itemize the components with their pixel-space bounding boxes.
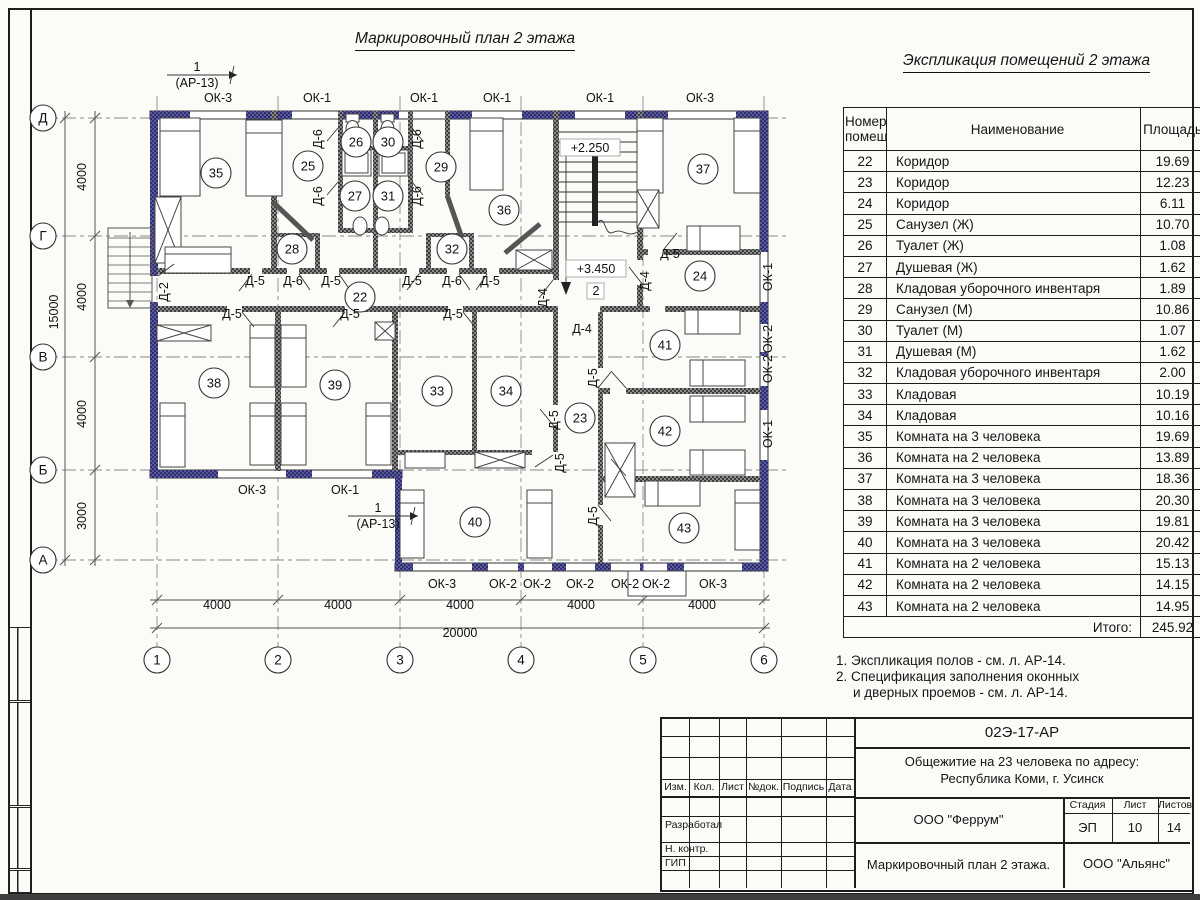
room-name-cell: Комната на 2 человека (887, 553, 1141, 574)
axis-number: 4 (517, 653, 525, 668)
room-number-cell: 36 (844, 447, 887, 468)
room-number: 39 (328, 378, 342, 393)
dimension-label: 15000 (47, 295, 61, 330)
room-number: 23 (573, 411, 587, 426)
window-label: ОК-3 (238, 483, 266, 497)
room-number: 42 (658, 424, 672, 439)
room-number-cell: 39 (844, 511, 887, 532)
role-ncontrol: Н. контр. (665, 843, 708, 855)
axis-letter: В (38, 350, 47, 365)
explication-table: Номерпомещ. Наименование Площадь Капо 22… (843, 107, 1200, 638)
axis-number: 6 (760, 653, 768, 668)
sheet-label: Лист (1112, 799, 1158, 811)
room-number-cell: 43 (844, 595, 887, 616)
room-name-cell: Комната на 2 человека (887, 595, 1141, 616)
room-area-cell: 19.69 (1141, 151, 1200, 172)
explication-row: 27Душевая (Ж)1.62 (844, 256, 1200, 277)
side-stamp-box (8, 870, 31, 893)
axis-letter: А (38, 553, 47, 568)
door-label: Д-5 (586, 368, 600, 388)
explication-row: 29Санузел (М)10.86 (844, 299, 1200, 320)
door-label: Д-6 (442, 274, 462, 288)
room-number: 22 (353, 290, 367, 305)
sanitary-fixtures (165, 114, 686, 596)
door-label: Д-6 (410, 129, 424, 149)
role-gip: ГИП (665, 857, 686, 869)
explication-row: 43Комната на 2 человека14.95 (844, 595, 1200, 616)
drawing-sheet: { "sheet": { "plan_title": "Маркировочны… (0, 0, 1200, 900)
col-number-header: Номерпомещ. (844, 108, 887, 151)
room-name-cell: Кладовая (887, 384, 1141, 405)
axis-number: 3 (396, 653, 404, 668)
room-name-cell: Душевая (Ж) (887, 256, 1141, 277)
scan-edge-strip (0, 894, 1200, 900)
section-number: 1 (375, 501, 382, 515)
door-label: Д-4 (638, 271, 652, 291)
room-area-cell: 13.89 (1141, 447, 1200, 468)
room-number-cell: 31 (844, 341, 887, 362)
explication-row: 30Туалет (М)1.07 (844, 320, 1200, 341)
sign-col-kol: Кол. (689, 781, 719, 793)
room-number-cell: 27 (844, 256, 887, 277)
explication-row: 35Комната на 3 человека19.69 (844, 426, 1200, 447)
window-label: ОК-2 (642, 577, 670, 591)
explication-title: Экспликация помещений 2 этажа (903, 52, 1150, 73)
room-area-cell: 14.15 (1141, 574, 1200, 595)
explication-row: 38Комната на 3 человека20.30 (844, 490, 1200, 511)
door-label: Д-6 (311, 186, 325, 206)
sign-col-doc: №док. (746, 781, 781, 793)
door-label: Д-5 (660, 247, 680, 261)
room-number: 32 (445, 242, 459, 257)
dimension-label: 20000 (443, 626, 478, 640)
explication-row: 32Кладовая уборочного инвентаря2.00 (844, 362, 1200, 383)
room-number: 33 (430, 384, 444, 399)
room-area-cell: 10.70 (1141, 214, 1200, 235)
room-number-cell: 38 (844, 490, 887, 511)
window-label: ОК-1 (483, 91, 511, 105)
dimension-label: 4000 (75, 283, 89, 311)
room-area-cell: 15.13 (1141, 553, 1200, 574)
window-label: ОК-2 (611, 577, 639, 591)
room-number-cell: 32 (844, 362, 887, 383)
room-number-cell: 35 (844, 426, 887, 447)
explication-row: 40Комната на 3 человека20.42 (844, 532, 1200, 553)
window-label: ОК-1 (586, 91, 614, 105)
object-name-line2: Республика Коми, г. Усинск (854, 771, 1190, 786)
room-number-cell: 29 (844, 299, 887, 320)
stage-label: Стадия (1063, 799, 1112, 811)
explication-row: 22Коридор19.69 (844, 151, 1200, 172)
room-name-cell: Душевая (М) (887, 341, 1141, 362)
room-area-cell: 1.89 (1141, 278, 1200, 299)
room-name-cell: Коридор (887, 172, 1141, 193)
room-number-cell: 33 (844, 384, 887, 405)
door-label: Д-4 (536, 288, 550, 308)
col-area-header: Площадь (1141, 108, 1200, 151)
explication-total-row: Итого: 245.92 (844, 617, 1200, 638)
room-number: 35 (209, 166, 223, 181)
dimension-label: 4000 (324, 598, 352, 612)
room-name-cell: Коридор (887, 151, 1141, 172)
col-name-header: Наименование (887, 108, 1141, 151)
room-number: 26 (349, 135, 363, 150)
room-number-cell: 24 (844, 193, 887, 214)
window-label: ОК-2 (761, 355, 775, 383)
door-label: Д-6 (311, 129, 325, 149)
room-number-cell: 28 (844, 278, 887, 299)
window-label: ОК-1 (331, 483, 359, 497)
room-area-cell: 10.19 (1141, 384, 1200, 405)
dimension-label: 4000 (567, 598, 595, 612)
stair-stringer (592, 146, 598, 226)
document-code: 02Э-17-АР (854, 724, 1190, 741)
title-block: Изм. Кол. Лист №док. Подпись Дата Разраб… (660, 717, 1194, 892)
section-ref: (АР-13) (175, 76, 218, 90)
window-label: ОК-2 (761, 325, 775, 353)
axis-letter: Б (39, 463, 48, 478)
axis-number: 1 (153, 653, 161, 668)
dimension-label: 4000 (75, 400, 89, 428)
room-name-cell: Кладовая (887, 405, 1141, 426)
room-number: 38 (207, 376, 221, 391)
explication-row: 28Кладовая уборочного инвентаря1.89 (844, 278, 1200, 299)
door-label: Д-2 (157, 282, 171, 302)
axis-letter: Г (39, 229, 47, 244)
room-area-cell: 6.11 (1141, 193, 1200, 214)
elevation-label: 2 (593, 284, 600, 298)
window-label: ОК-2 (566, 577, 594, 591)
designer-org: ООО "Феррум" (854, 812, 1063, 827)
door-label: Д-5 (547, 410, 561, 430)
window-label: ОК-1 (761, 420, 775, 448)
room-number-cell: 40 (844, 532, 887, 553)
room-area-cell: 1.08 (1141, 235, 1200, 256)
stair-arrow (561, 282, 571, 295)
dimension-label: 4000 (75, 163, 89, 191)
dimension-label: 3000 (75, 502, 89, 530)
explication-row: 23Коридор12.23 (844, 172, 1200, 193)
window-label: ОК-3 (204, 91, 232, 105)
axis-number: 5 (639, 653, 647, 668)
explication-row: 37Комната на 3 человека18.36 (844, 468, 1200, 489)
room-name-cell: Комната на 3 человека (887, 426, 1141, 447)
explication-header-row: Номерпомещ. Наименование Площадь Капо (844, 108, 1200, 151)
explication-row: 34Кладовая10.16 (844, 405, 1200, 426)
room-area-cell: 20.42 (1141, 532, 1200, 553)
room-name-cell: Комната на 3 человека (887, 511, 1141, 532)
door-label: Д-5 (553, 453, 567, 473)
explication-row: 39Комната на 3 человека19.81 (844, 511, 1200, 532)
section-ref: (АР-13) (356, 517, 399, 531)
explication-row: 42Комната на 2 человека14.15 (844, 574, 1200, 595)
contractor-org: ООО "Альянс" (1063, 856, 1190, 871)
door-label: Д-5 (321, 274, 341, 288)
room-number-cell: 22 (844, 151, 887, 172)
room-area-cell: 14.95 (1141, 595, 1200, 616)
axis-letter: Д (38, 111, 47, 126)
window-label: ОК-3 (428, 577, 456, 591)
sign-col-podpis: Подпись (781, 781, 826, 793)
room-number: 25 (301, 159, 315, 174)
room-number-cell: 34 (844, 405, 887, 426)
explication-row: 33Кладовая10.19 (844, 384, 1200, 405)
sheets-total: 14 (1158, 820, 1190, 835)
elevation-label: +2.250 (571, 141, 610, 155)
elevation-label: +3.450 (577, 262, 616, 276)
window-label: ОК-1 (761, 263, 775, 291)
room-name-cell: Комната на 2 человека (887, 574, 1141, 595)
room-area-cell: 18.36 (1141, 468, 1200, 489)
total-label: Итого: (844, 617, 1141, 638)
window-label: ОК-1 (303, 91, 331, 105)
room-area-cell: 10.86 (1141, 299, 1200, 320)
room-number: 36 (497, 203, 511, 218)
room-number: 41 (658, 338, 672, 353)
sign-col-izm: Изм. (662, 781, 689, 793)
total-value: 245.92 (1141, 617, 1200, 638)
room-number: 31 (381, 189, 395, 204)
explication-row: 26Туалет (Ж)1.08 (844, 235, 1200, 256)
explication-row: 31Душевая (М)1.62 (844, 341, 1200, 362)
room-number: 37 (696, 162, 710, 177)
door-label: Д-5 (586, 506, 600, 526)
window-label: ОК-3 (699, 577, 727, 591)
role-developer: Разработал (665, 819, 722, 831)
room-name-cell: Комната на 3 человека (887, 468, 1141, 489)
sign-col-data: Дата (826, 781, 854, 793)
door-label: Д-6 (410, 186, 424, 206)
room-name-cell: Санузел (М) (887, 299, 1141, 320)
room-name-cell: Кладовая уборочного инвентаря (887, 362, 1141, 383)
room-number-cell: 41 (844, 553, 887, 574)
window-label: ОК-2 (489, 577, 517, 591)
room-number-cell: 26 (844, 235, 887, 256)
room-area-cell: 1.07 (1141, 320, 1200, 341)
room-number-cell: 37 (844, 468, 887, 489)
room-area-cell: 12.23 (1141, 172, 1200, 193)
note-line: и дверных проемов - см. л. АР-14. (853, 685, 1068, 700)
room-name-cell: Кладовая уборочного инвентаря (887, 278, 1141, 299)
room-area-cell: 20.30 (1141, 490, 1200, 511)
explication-row: 41Комната на 2 человека15.13 (844, 553, 1200, 574)
door-label: Д-5 (340, 307, 360, 321)
room-number: 28 (285, 242, 299, 257)
room-name-cell: Туалет (Ж) (887, 235, 1141, 256)
object-name-line1: Общежитие на 23 человека по адресу: (854, 754, 1190, 769)
door-label: Д-5 (443, 307, 463, 321)
dimension-label: 4000 (203, 598, 231, 612)
sheet-number: 10 (1112, 820, 1158, 835)
room-number-cell: 30 (844, 320, 887, 341)
room-number-cell: 23 (844, 172, 887, 193)
note-line: 1. Экспликация полов - см. л. АР-14. (836, 653, 1066, 668)
room-number: 29 (434, 160, 448, 175)
sign-col-list: Лист (719, 781, 746, 793)
sheets-label: Листов (1158, 799, 1190, 811)
drawing-name: Маркировочный план 2 этажа. (854, 857, 1063, 872)
door-label: Д-4 (572, 322, 592, 336)
room-number-cell: 42 (844, 574, 887, 595)
floor-plan-drawing: 2223242526272829303132333435363738394041… (0, 0, 840, 720)
room-name-cell: Комната на 2 человека (887, 447, 1141, 468)
explication-row: 24Коридор6.11 (844, 193, 1200, 214)
dimension-label: 4000 (688, 598, 716, 612)
door-label: Д-5 (222, 307, 242, 321)
stage-value: ЭП (1063, 820, 1112, 835)
room-name-cell: Туалет (М) (887, 320, 1141, 341)
window-label: ОК-2 (523, 577, 551, 591)
side-stamp-box (8, 807, 31, 869)
room-number: 40 (468, 515, 482, 530)
room-area-cell: 19.69 (1141, 426, 1200, 447)
room-area-cell: 1.62 (1141, 256, 1200, 277)
door-label: Д-5 (402, 274, 422, 288)
room-number: 30 (381, 135, 395, 150)
window-label: ОК-1 (410, 91, 438, 105)
room-area-cell: 1.62 (1141, 341, 1200, 362)
note-line: 2. Спецификация заполнения оконных (836, 669, 1079, 684)
room-number: 43 (677, 521, 691, 536)
room-area-cell: 19.81 (1141, 511, 1200, 532)
explication-row: 25Санузел (Ж)10.70 (844, 214, 1200, 235)
room-area-cell: 10.16 (1141, 405, 1200, 426)
room-number: 24 (693, 269, 707, 284)
door-label: Д-6 (283, 274, 303, 288)
room-number: 27 (348, 189, 362, 204)
room-number: 34 (499, 384, 513, 399)
external-stair (108, 228, 152, 308)
section-number: 1 (194, 60, 201, 74)
room-area-cell: 2.00 (1141, 362, 1200, 383)
door-label: Д-5 (245, 274, 265, 288)
axis-number: 2 (274, 653, 282, 668)
explication-row: 36Комната на 2 человека13.89 (844, 447, 1200, 468)
room-name-cell: Коридор (887, 193, 1141, 214)
room-name-cell: Комната на 3 человека (887, 532, 1141, 553)
room-name-cell: Комната на 3 человека (887, 490, 1141, 511)
dimension-label: 4000 (446, 598, 474, 612)
room-name-cell: Санузел (Ж) (887, 214, 1141, 235)
room-number-cell: 25 (844, 214, 887, 235)
door-label: Д-5 (480, 274, 500, 288)
window-label: ОК-3 (686, 91, 714, 105)
